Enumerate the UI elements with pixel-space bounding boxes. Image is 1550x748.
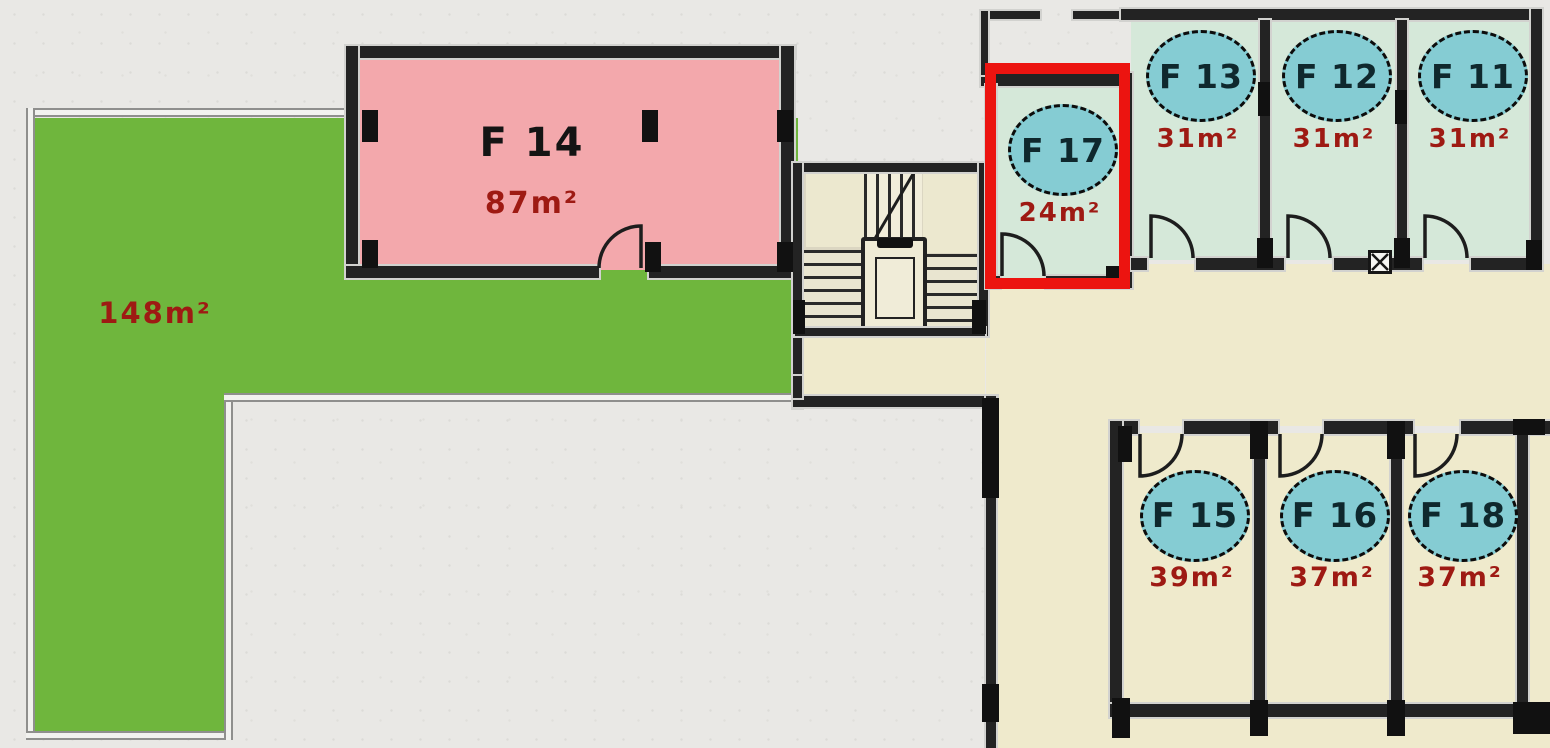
column-block: [642, 110, 658, 142]
wall-bottom-row-bottom: [1110, 704, 1550, 717]
terrace-wall-top: [26, 108, 356, 117]
shaft-symbol: [1368, 250, 1392, 274]
corridor-bottom-strip: [1116, 716, 1550, 748]
column-block: [777, 242, 793, 272]
column-block: [777, 110, 793, 142]
terrace-wall-inner-vertical: [224, 398, 233, 740]
floor-plan: F 14 87m² 148m² F 17 24m² F 13 31m² F 12…: [0, 0, 1550, 748]
area-label-f12: 31m²: [1274, 124, 1394, 158]
corridor-vertical: [986, 426, 1116, 748]
column-block: [1513, 419, 1545, 435]
room-label-f14: F 14: [432, 120, 632, 166]
corridor-below-stairs: [801, 332, 985, 400]
column-block: [645, 242, 661, 272]
terrace-wall-inner-horizontal: [224, 393, 799, 402]
column-block: [1112, 698, 1130, 738]
area-label-f16: 37m²: [1272, 562, 1392, 598]
column-block: [1250, 700, 1268, 736]
column-block: [972, 300, 986, 334]
room-partial-right: [1526, 426, 1550, 718]
room-badge-f13[interactable]: F 13: [1146, 30, 1256, 122]
area-label-terrace: 148m²: [60, 296, 250, 336]
wall-corridor-horizontal: [793, 396, 997, 407]
terrace-area-arm[interactable]: [34, 400, 224, 734]
area-label-f15: 39m²: [1132, 562, 1252, 598]
selection-highlight-f17: [985, 63, 1130, 289]
column-block: [1395, 90, 1407, 124]
column-block: [982, 684, 999, 722]
wall-f14-top: [346, 46, 795, 58]
column-block: [1258, 82, 1270, 116]
wall-corridor-step: [793, 376, 802, 398]
door-arc-f12: [1284, 208, 1334, 258]
elevator-door-bar: [877, 238, 913, 248]
room-badge-f15[interactable]: F 15: [1140, 470, 1250, 562]
room-badge-f12[interactable]: F 12: [1282, 30, 1392, 122]
column-block: [1250, 421, 1268, 459]
column-block: [1118, 426, 1132, 462]
column-block: [1513, 702, 1550, 734]
wall-stair-left: [793, 163, 802, 408]
room-badge-f18[interactable]: F 18: [1408, 470, 1518, 562]
wall-stub-top-left: [981, 11, 1040, 19]
door-arc-f11: [1421, 208, 1471, 258]
area-label-f18: 37m²: [1400, 562, 1520, 598]
column-block: [1394, 238, 1410, 268]
area-label-f13: 31m²: [1138, 124, 1258, 158]
terrace-wall-bottom: [26, 731, 233, 740]
column-block: [362, 240, 378, 268]
wall-divider-f12-f11: [1397, 20, 1407, 260]
wall-f15-left: [1110, 421, 1122, 716]
wall-stair-bottom: [795, 328, 985, 336]
wall-divider-f13-f12: [1260, 20, 1270, 260]
column-block: [1526, 240, 1542, 270]
area-label-f11: 31m²: [1410, 124, 1530, 158]
wall-top-row: [1121, 9, 1542, 20]
stair-landing-right: [923, 173, 979, 253]
door-arc-f13: [1147, 208, 1197, 258]
area-label-f14: 87m²: [432, 186, 632, 222]
stair-landing-left: [806, 173, 864, 247]
terrace-wall-left: [26, 108, 35, 740]
door-arc-f14: [595, 218, 645, 268]
stair-treads-left: [801, 250, 864, 330]
wall-stub-top-right: [1073, 11, 1123, 19]
wall-mint-bottom-1: [1131, 258, 1147, 270]
column-block: [1257, 238, 1273, 268]
wall-divider-f15-f16: [1254, 421, 1265, 716]
wall-f14-bottom-right: [649, 266, 795, 278]
column-block: [1387, 700, 1405, 736]
column-block: [1387, 421, 1405, 459]
wall-stair-top: [795, 163, 985, 172]
wall-f14-bottom-left: [346, 266, 599, 278]
room-badge-f11[interactable]: F 11: [1418, 30, 1528, 122]
elevator-car: [875, 257, 915, 319]
column-block: [982, 398, 999, 498]
room-badge-f16[interactable]: F 16: [1280, 470, 1390, 562]
wall-f14-left: [346, 46, 358, 278]
column-block: [793, 300, 805, 334]
column-block: [362, 110, 378, 142]
wall-f11-right: [1531, 9, 1542, 260]
